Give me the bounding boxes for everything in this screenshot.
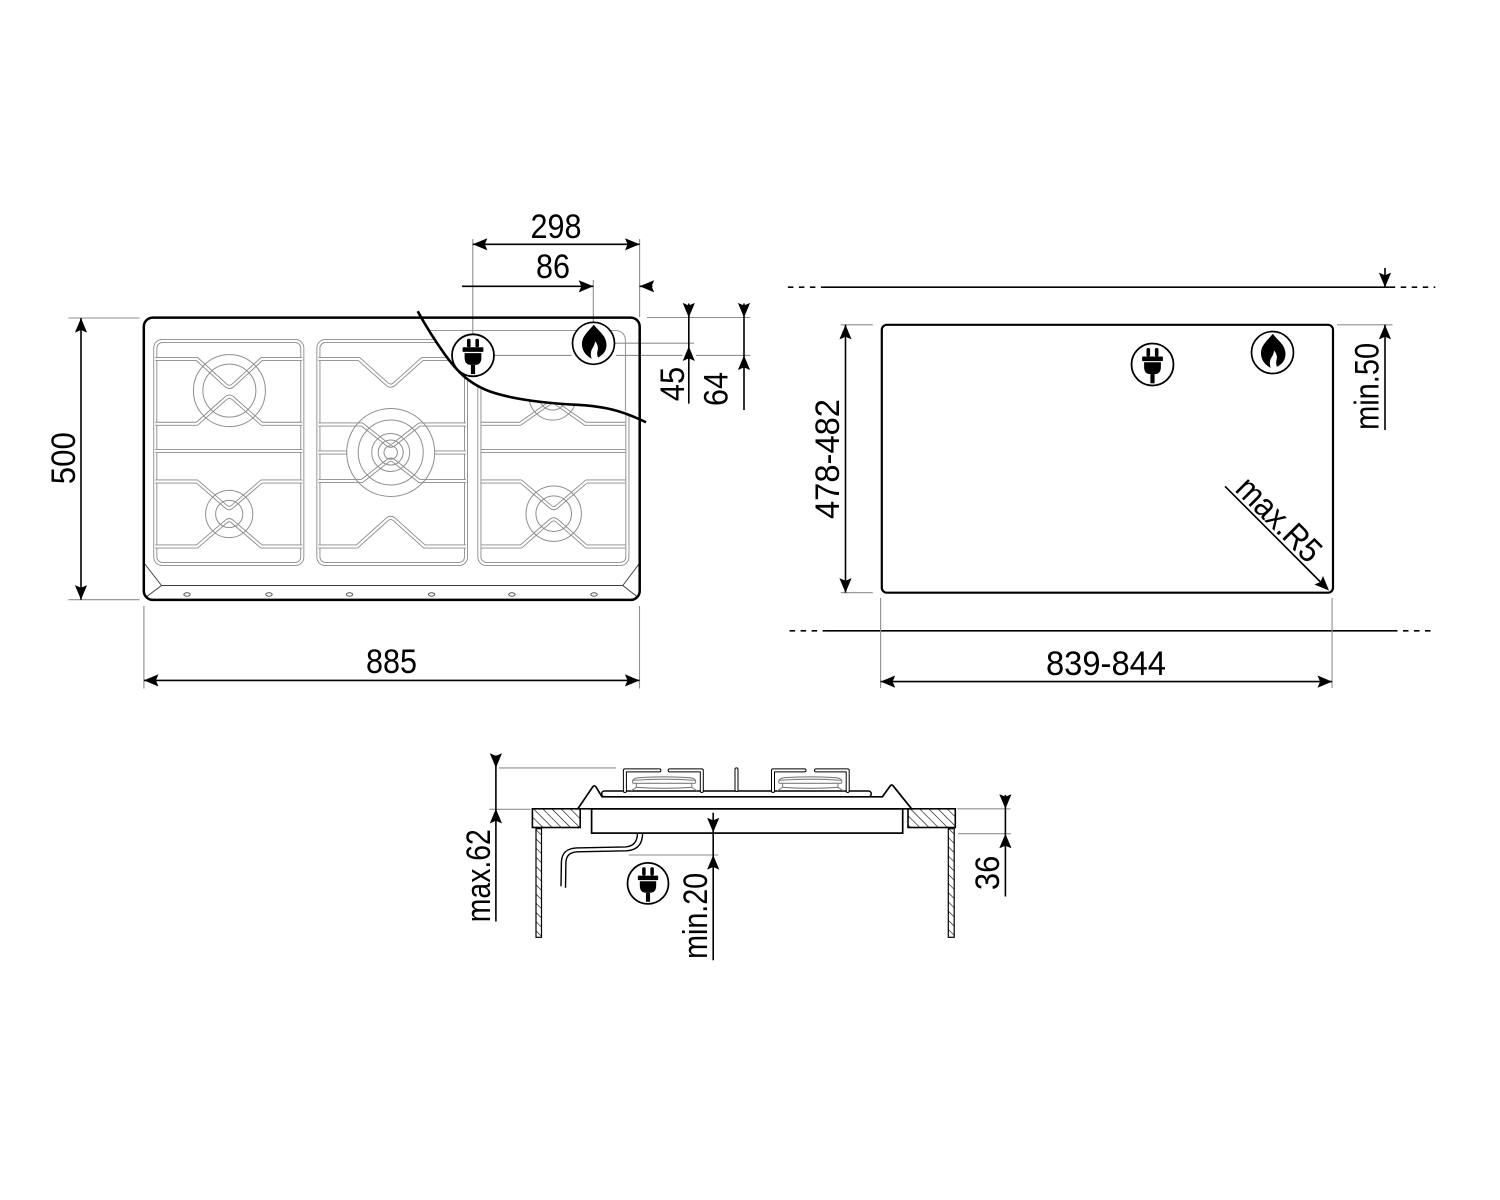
svg-text:64: 64 — [697, 372, 735, 406]
svg-text:86: 86 — [536, 248, 570, 286]
svg-text:500: 500 — [45, 432, 83, 484]
svg-text:max.62: max.62 — [460, 829, 498, 922]
svg-text:45: 45 — [654, 367, 692, 401]
svg-text:298: 298 — [531, 208, 582, 246]
svg-text:36: 36 — [969, 856, 1007, 890]
svg-text:min.50: min.50 — [1349, 343, 1387, 430]
svg-text:839-844: 839-844 — [1046, 645, 1166, 683]
svg-text:min.20: min.20 — [677, 873, 715, 959]
svg-text:478-482: 478-482 — [809, 399, 847, 519]
svg-text:885: 885 — [366, 643, 417, 681]
